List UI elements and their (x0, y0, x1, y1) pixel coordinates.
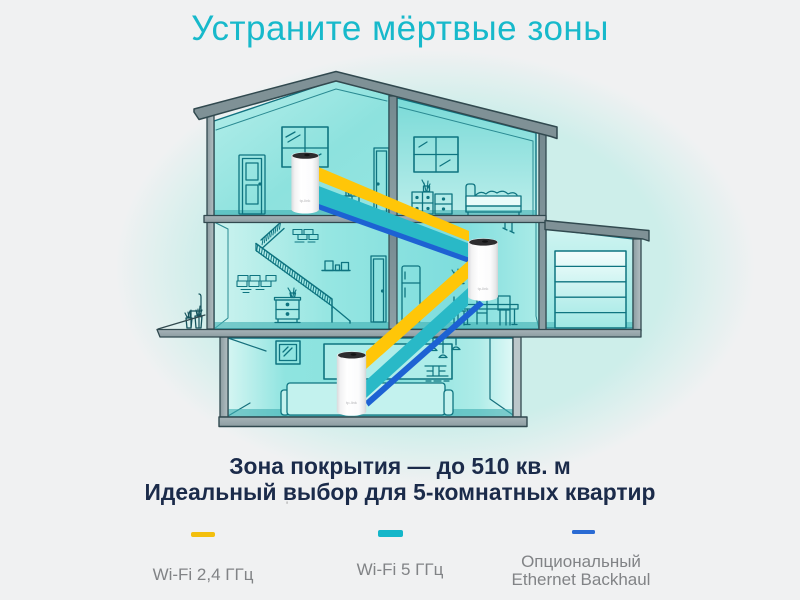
svg-text:tp-link: tp-link (346, 400, 357, 405)
svg-text:tp-link: tp-link (300, 198, 311, 203)
svg-text:tp-link: tp-link (478, 286, 489, 291)
